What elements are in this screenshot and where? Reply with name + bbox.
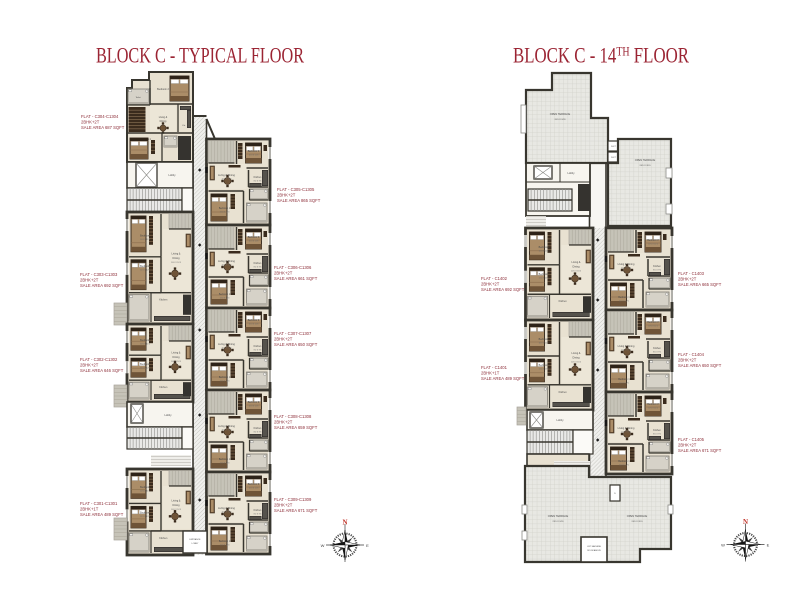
svg-text:Bedroom 1: Bedroom 1 <box>618 296 630 299</box>
svg-text:10’0 X 16’5: 10’0 X 16’5 <box>621 350 632 352</box>
svg-text:10’0 X 16’5: 10’0 X 16’5 <box>221 512 232 514</box>
svg-text:10’0 X 16’5: 10’0 X 16’5 <box>171 262 182 264</box>
svg-text:10’0 X 11’6: 10’0 X 11’6 <box>140 344 151 346</box>
svg-text:OPEN TERRACE: OPEN TERRACE <box>635 158 656 162</box>
svg-text:8’0 X 9’6: 8’0 X 9’6 <box>653 352 662 354</box>
svg-text:ROOM ABOVE: ROOM ABOVE <box>587 549 601 552</box>
svg-text:20’0 X 24’6: 20’0 X 24’6 <box>555 119 567 121</box>
svg-text:Bedroom: Bedroom <box>539 273 549 276</box>
svg-text:Kitchen: Kitchen <box>559 391 568 394</box>
svg-text:Bedroom 1: Bedroom 1 <box>219 293 231 296</box>
svg-text:Bedroom: Bedroom <box>539 246 549 249</box>
svg-text:Dining: Dining <box>172 257 180 260</box>
svg-text:ENTRANCE: ENTRANCE <box>189 538 201 541</box>
svg-text:W: W <box>321 543 325 548</box>
svg-text:10’0 X 11’6: 10’0 X 11’6 <box>249 324 260 326</box>
svg-text:10’0 X 11’6: 10’0 X 11’6 <box>249 155 260 157</box>
svg-text:10’0 X 11’6: 10’0 X 11’6 <box>648 326 659 328</box>
svg-text:8’0 X 9’6: 8’0 X 9’6 <box>254 350 263 352</box>
svg-text:W: W <box>721 542 725 547</box>
svg-text:Kitchen: Kitchen <box>653 347 661 350</box>
svg-text:Living & Dining: Living & Dining <box>618 427 635 430</box>
svg-text:Bedroom: Bedroom <box>140 265 150 268</box>
svg-text:Living & Dining: Living & Dining <box>218 507 235 510</box>
svg-text:Kitchen: Kitchen <box>653 265 661 268</box>
svg-text:Bedroom 1: Bedroom 1 <box>618 378 630 381</box>
svg-text:Bedroom: Bedroom <box>140 511 150 514</box>
svg-text:8’0 X 9’6: 8’0 X 9’6 <box>254 514 263 516</box>
svg-text:Kitchen: Kitchen <box>559 300 568 303</box>
svg-text:23’0 X 24’6: 23’0 X 24’6 <box>553 521 565 523</box>
svg-text:OPEN TERRACE: OPEN TERRACE <box>550 112 571 116</box>
svg-text:10’0 X 16’5: 10’0 X 16’5 <box>221 265 232 267</box>
svg-text:11’0 X 12’0: 11’0 X 12’0 <box>539 277 550 279</box>
svg-text:11’0 X 12’0: 11’0 X 12’0 <box>619 383 630 385</box>
svg-text:11’0 X 12’0: 11’0 X 12’0 <box>220 298 231 300</box>
svg-text:24’6 X 26’0: 24’6 X 26’0 <box>632 521 644 523</box>
svg-text:Bedroom: Bedroom <box>539 364 549 367</box>
svg-text:Lobby: Lobby <box>164 413 172 417</box>
svg-text:Bedroom: Bedroom <box>140 235 150 238</box>
svg-text:Dining: Dining <box>172 356 180 359</box>
svg-text:Living & Dining: Living & Dining <box>618 345 635 348</box>
svg-text:Bedroom 1: Bedroom 1 <box>219 458 231 461</box>
svg-text:Living &: Living & <box>172 253 181 256</box>
svg-text:Kitchen: Kitchen <box>254 176 262 179</box>
svg-text:11’0 X 12’0: 11’0 X 12’0 <box>220 381 231 383</box>
svg-text:8’0 X 9’6: 8’0 X 9’6 <box>653 434 662 436</box>
svg-text:10’0 X 11’6: 10’0 X 11’6 <box>249 241 260 243</box>
svg-text:Bedroom 2: Bedroom 2 <box>248 236 260 239</box>
svg-text:OPEN TERRACE: OPEN TERRACE <box>548 514 569 518</box>
svg-text:Kitchen: Kitchen <box>254 345 262 348</box>
svg-text:E: E <box>767 542 770 547</box>
svg-text:11’0 X 12’0: 11’0 X 12’0 <box>140 269 151 271</box>
svg-text:Living & Dining: Living & Dining <box>218 260 235 263</box>
svg-text:Living &: Living & <box>159 116 168 119</box>
svg-text:10’0 X 16’5: 10’0 X 16’5 <box>221 348 232 350</box>
svg-text:8’0 X 9’6: 8’0 X 9’6 <box>254 267 263 269</box>
svg-text:Bedroom 1: Bedroom 1 <box>618 460 630 463</box>
svg-text:10’0 X 11’6: 10’0 X 11’6 <box>648 244 659 246</box>
svg-text:11’0 X 12’0: 11’0 X 12’0 <box>220 545 231 547</box>
svg-text:Living & Dining: Living & Dining <box>218 343 235 346</box>
svg-text:10’0 X 16’5: 10’0 X 16’5 <box>571 362 582 364</box>
svg-text:Living &: Living & <box>172 352 181 355</box>
svg-text:24’6 X 26’0: 24’6 X 26’0 <box>640 165 652 167</box>
svg-text:Lobby: Lobby <box>567 171 575 175</box>
svg-text:LOBBY: LOBBY <box>192 543 199 545</box>
svg-text:Kit.: Kit. <box>182 124 186 127</box>
svg-text:Kitchen: Kitchen <box>159 537 168 540</box>
svg-text:Bedroom: Bedroom <box>140 339 150 342</box>
svg-text:10’0 X 11’6: 10’0 X 11’6 <box>249 406 260 408</box>
svg-text:Kitchen: Kitchen <box>159 299 168 302</box>
svg-text:Bedroom: Bedroom <box>539 338 549 341</box>
svg-text:Bedroom 2: Bedroom 2 <box>647 403 659 406</box>
svg-text:10’0 X 16’5: 10’0 X 16’5 <box>221 179 232 181</box>
svg-text:BLOCK C - TYPICAL FLOOR: BLOCK C - TYPICAL FLOOR <box>96 43 304 68</box>
svg-text:LIFT MACHINE: LIFT MACHINE <box>587 545 602 548</box>
svg-text:Kitchen: Kitchen <box>653 429 661 432</box>
svg-text:11’0 X 12’0: 11’0 X 12’0 <box>140 368 151 370</box>
svg-text:Bedroom 2: Bedroom 2 <box>248 483 260 486</box>
svg-text:Dining: Dining <box>572 265 580 268</box>
svg-text:Kitchen: Kitchen <box>254 509 262 512</box>
svg-text:10’0 X 16’5: 10’0 X 16’5 <box>171 509 182 511</box>
svg-text:11’0 X 12’0: 11’0 X 12’0 <box>619 301 630 303</box>
svg-text:Living &: Living & <box>572 261 581 264</box>
svg-text:Living &: Living & <box>172 500 181 503</box>
svg-text:N: N <box>743 518 748 526</box>
svg-text:Bedroom 2: Bedroom 2 <box>248 319 260 322</box>
svg-text:10’0 X 16’5: 10’0 X 16’5 <box>171 361 182 363</box>
svg-text:Lobby: Lobby <box>556 418 564 422</box>
svg-text:10’0 X 16’5: 10’0 X 16’5 <box>621 432 632 434</box>
svg-text:Bedroom 2: Bedroom 2 <box>157 88 169 91</box>
svg-text:N: N <box>342 519 347 527</box>
svg-text:10’0 X 11’6: 10’0 X 11’6 <box>249 488 260 490</box>
svg-text:Living &: Living & <box>572 352 581 355</box>
svg-text:11’0 X 12’0: 11’0 X 12’0 <box>539 369 550 371</box>
svg-text:10’0 X 11’6: 10’0 X 11’6 <box>140 239 151 241</box>
svg-text:Bedroom 2: Bedroom 2 <box>248 401 260 404</box>
svg-text:Kitchen: Kitchen <box>254 427 262 430</box>
svg-text:Bedroom 1: Bedroom 1 <box>219 540 231 543</box>
svg-text:10’0 X 11’6: 10’0 X 11’6 <box>539 251 550 253</box>
svg-text:11’0 X 12’0: 11’0 X 12’0 <box>140 516 151 518</box>
svg-text:Living & Dining: Living & Dining <box>218 425 235 428</box>
svg-text:Bedroom 2: Bedroom 2 <box>248 150 260 153</box>
svg-text:Bedroom 1: Bedroom 1 <box>219 376 231 379</box>
svg-text:8’0 X 9’6: 8’0 X 9’6 <box>254 181 263 183</box>
svg-text:Dining: Dining <box>572 357 580 360</box>
svg-text:Toilet: Toilet <box>135 96 140 99</box>
svg-text:10’0 X 16’5: 10’0 X 16’5 <box>621 268 632 270</box>
svg-text:Bedroom 1: Bedroom 1 <box>219 207 231 210</box>
svg-text:E: E <box>366 543 369 548</box>
svg-text:Living & Dining: Living & Dining <box>618 263 635 266</box>
svg-text:Bedroom 2: Bedroom 2 <box>647 239 659 242</box>
svg-text:10’0 X 16’5: 10’0 X 16’5 <box>221 430 232 432</box>
svg-text:Living & Dining: Living & Dining <box>218 174 235 177</box>
svg-text:8’0 X 9’6: 8’0 X 9’6 <box>653 270 662 272</box>
svg-text:Bedroom 2: Bedroom 2 <box>647 321 659 324</box>
svg-text:10’0 X 11’6: 10’0 X 11’6 <box>539 342 550 344</box>
svg-text:10’0 X 11’6: 10’0 X 11’6 <box>140 490 151 492</box>
svg-text:11’0 X 12’0: 11’0 X 12’0 <box>220 463 231 465</box>
svg-text:Lobby: Lobby <box>168 173 176 177</box>
svg-text:Bedroom: Bedroom <box>140 486 150 489</box>
svg-text:11’0 X 12’0: 11’0 X 12’0 <box>619 465 630 467</box>
svg-text:Dining: Dining <box>172 504 180 507</box>
svg-text:10’0 X 16’5: 10’0 X 16’5 <box>571 270 582 272</box>
svg-text:OPEN TERRACE: OPEN TERRACE <box>627 514 648 518</box>
svg-text:Bedroom: Bedroom <box>140 363 150 366</box>
svg-text:8’0 X 9’6: 8’0 X 9’6 <box>254 432 263 434</box>
svg-text:Kitchen: Kitchen <box>159 386 168 389</box>
svg-text:Kitchen: Kitchen <box>254 262 262 265</box>
svg-text:10’0 X 11’6: 10’0 X 11’6 <box>648 408 659 410</box>
svg-text:BLOCK C - 14TH FLOOR: BLOCK C - 14TH FLOOR <box>513 43 689 68</box>
svg-text:11’0 X 12’0: 11’0 X 12’0 <box>220 212 231 214</box>
